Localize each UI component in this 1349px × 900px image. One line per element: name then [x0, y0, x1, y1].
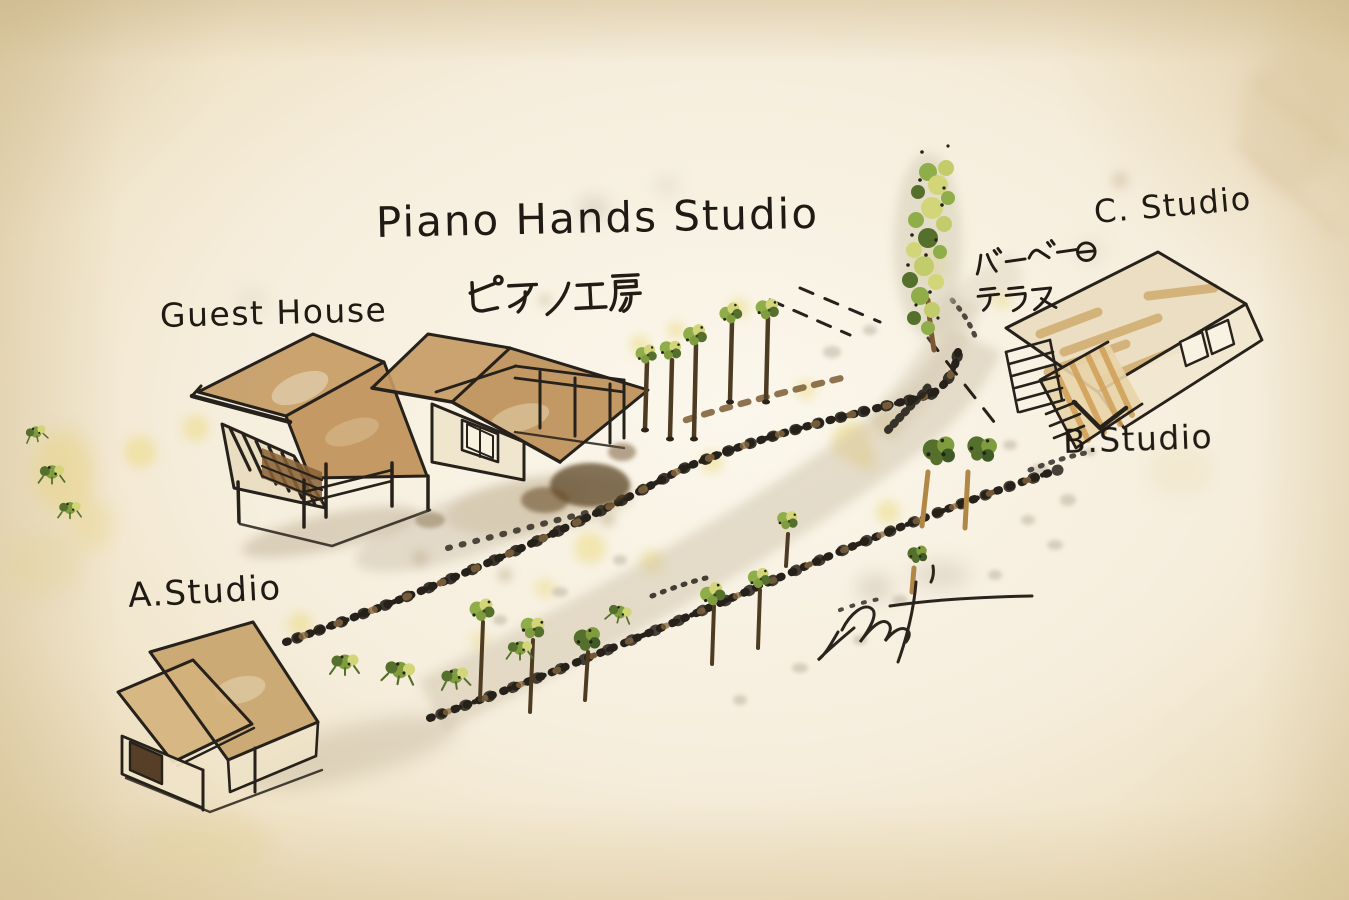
bbq-terrace-label-ja-line1: [975, 236, 1097, 274]
piano-workshop-label-ja: [469, 269, 641, 319]
watercolor-site-map: Piano Hands Studio Guest House C. Studio…: [0, 0, 1349, 900]
guest-house-label: Guest House: [159, 290, 387, 335]
tree-row: [636, 297, 781, 442]
b-studio-label: B.Studio: [1062, 417, 1214, 461]
site-title: Piano Hands Studio: [375, 189, 819, 247]
a-studio-label: A.Studio: [127, 568, 283, 616]
